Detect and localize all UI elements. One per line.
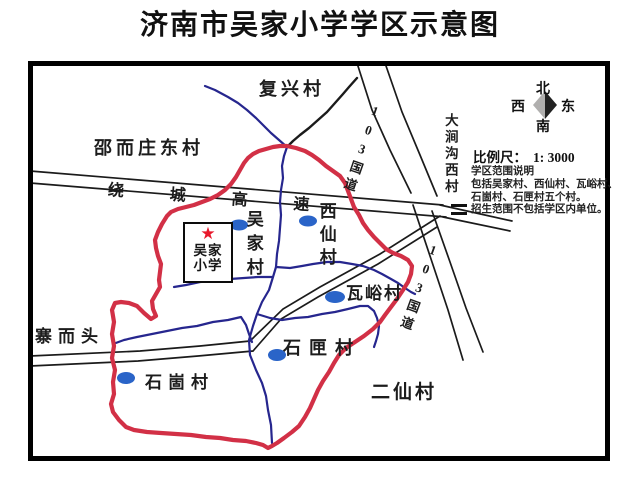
village-label-wujia: 吴家村 xyxy=(243,210,262,282)
compass-north-label: 北 xyxy=(536,78,550,98)
village-label-erxian: 二仙村 xyxy=(371,383,437,404)
notes-line-1: 学区范围说明 xyxy=(471,166,618,179)
scale-label: 比例尺： xyxy=(473,150,527,165)
wayu-village-dot xyxy=(325,291,345,303)
xixian-village-dot xyxy=(299,216,317,227)
village-label-zhaiertou: 寨而头 xyxy=(35,328,104,347)
village-label-shigu: 石崮村 xyxy=(145,374,214,393)
scale-value: 1: 3000 xyxy=(533,150,575,165)
notes-line-4: 招生范围不包括学区内单位。 xyxy=(471,204,618,217)
school-name-line2: 小学 xyxy=(185,258,231,273)
school-star-icon: ★ xyxy=(185,225,231,243)
scale-indicator: 比例尺：1: 3000 xyxy=(473,146,575,166)
village-label-dajiangou: 大涧沟西村 xyxy=(442,113,457,196)
notes-line-3: 石崮村、石匣村五个村。 xyxy=(471,192,618,205)
compass-west-label: 西 xyxy=(511,96,525,116)
village-label-shixia: 石匣村 xyxy=(283,339,361,359)
shigu-village-dot xyxy=(117,372,135,384)
village-label-shaoerzhuang: 邵而庄东村 xyxy=(94,139,204,159)
village-label-fuxing: 复兴村 xyxy=(259,80,325,100)
river-branch-west-lower xyxy=(113,317,252,344)
compass-east-label: 东 xyxy=(561,96,575,116)
compass-south-label: 南 xyxy=(536,116,550,136)
village-label-wayu: 瓦峪村 xyxy=(346,285,403,304)
district-notes: 学区范围说明 包括吴家村、西仙村、瓦峪村、 石崮村、石匣村五个村。 招生范围不包… xyxy=(471,166,618,217)
school-name-line1: 吴家 xyxy=(185,243,231,258)
notes-line-2: 包括吴家村、西仙村、瓦峪村、 xyxy=(471,179,618,192)
school-marker-box: ★ 吴家 小学 xyxy=(183,222,233,283)
schematic-map: 济南市吴家小学学区示意图 xyxy=(0,0,640,483)
